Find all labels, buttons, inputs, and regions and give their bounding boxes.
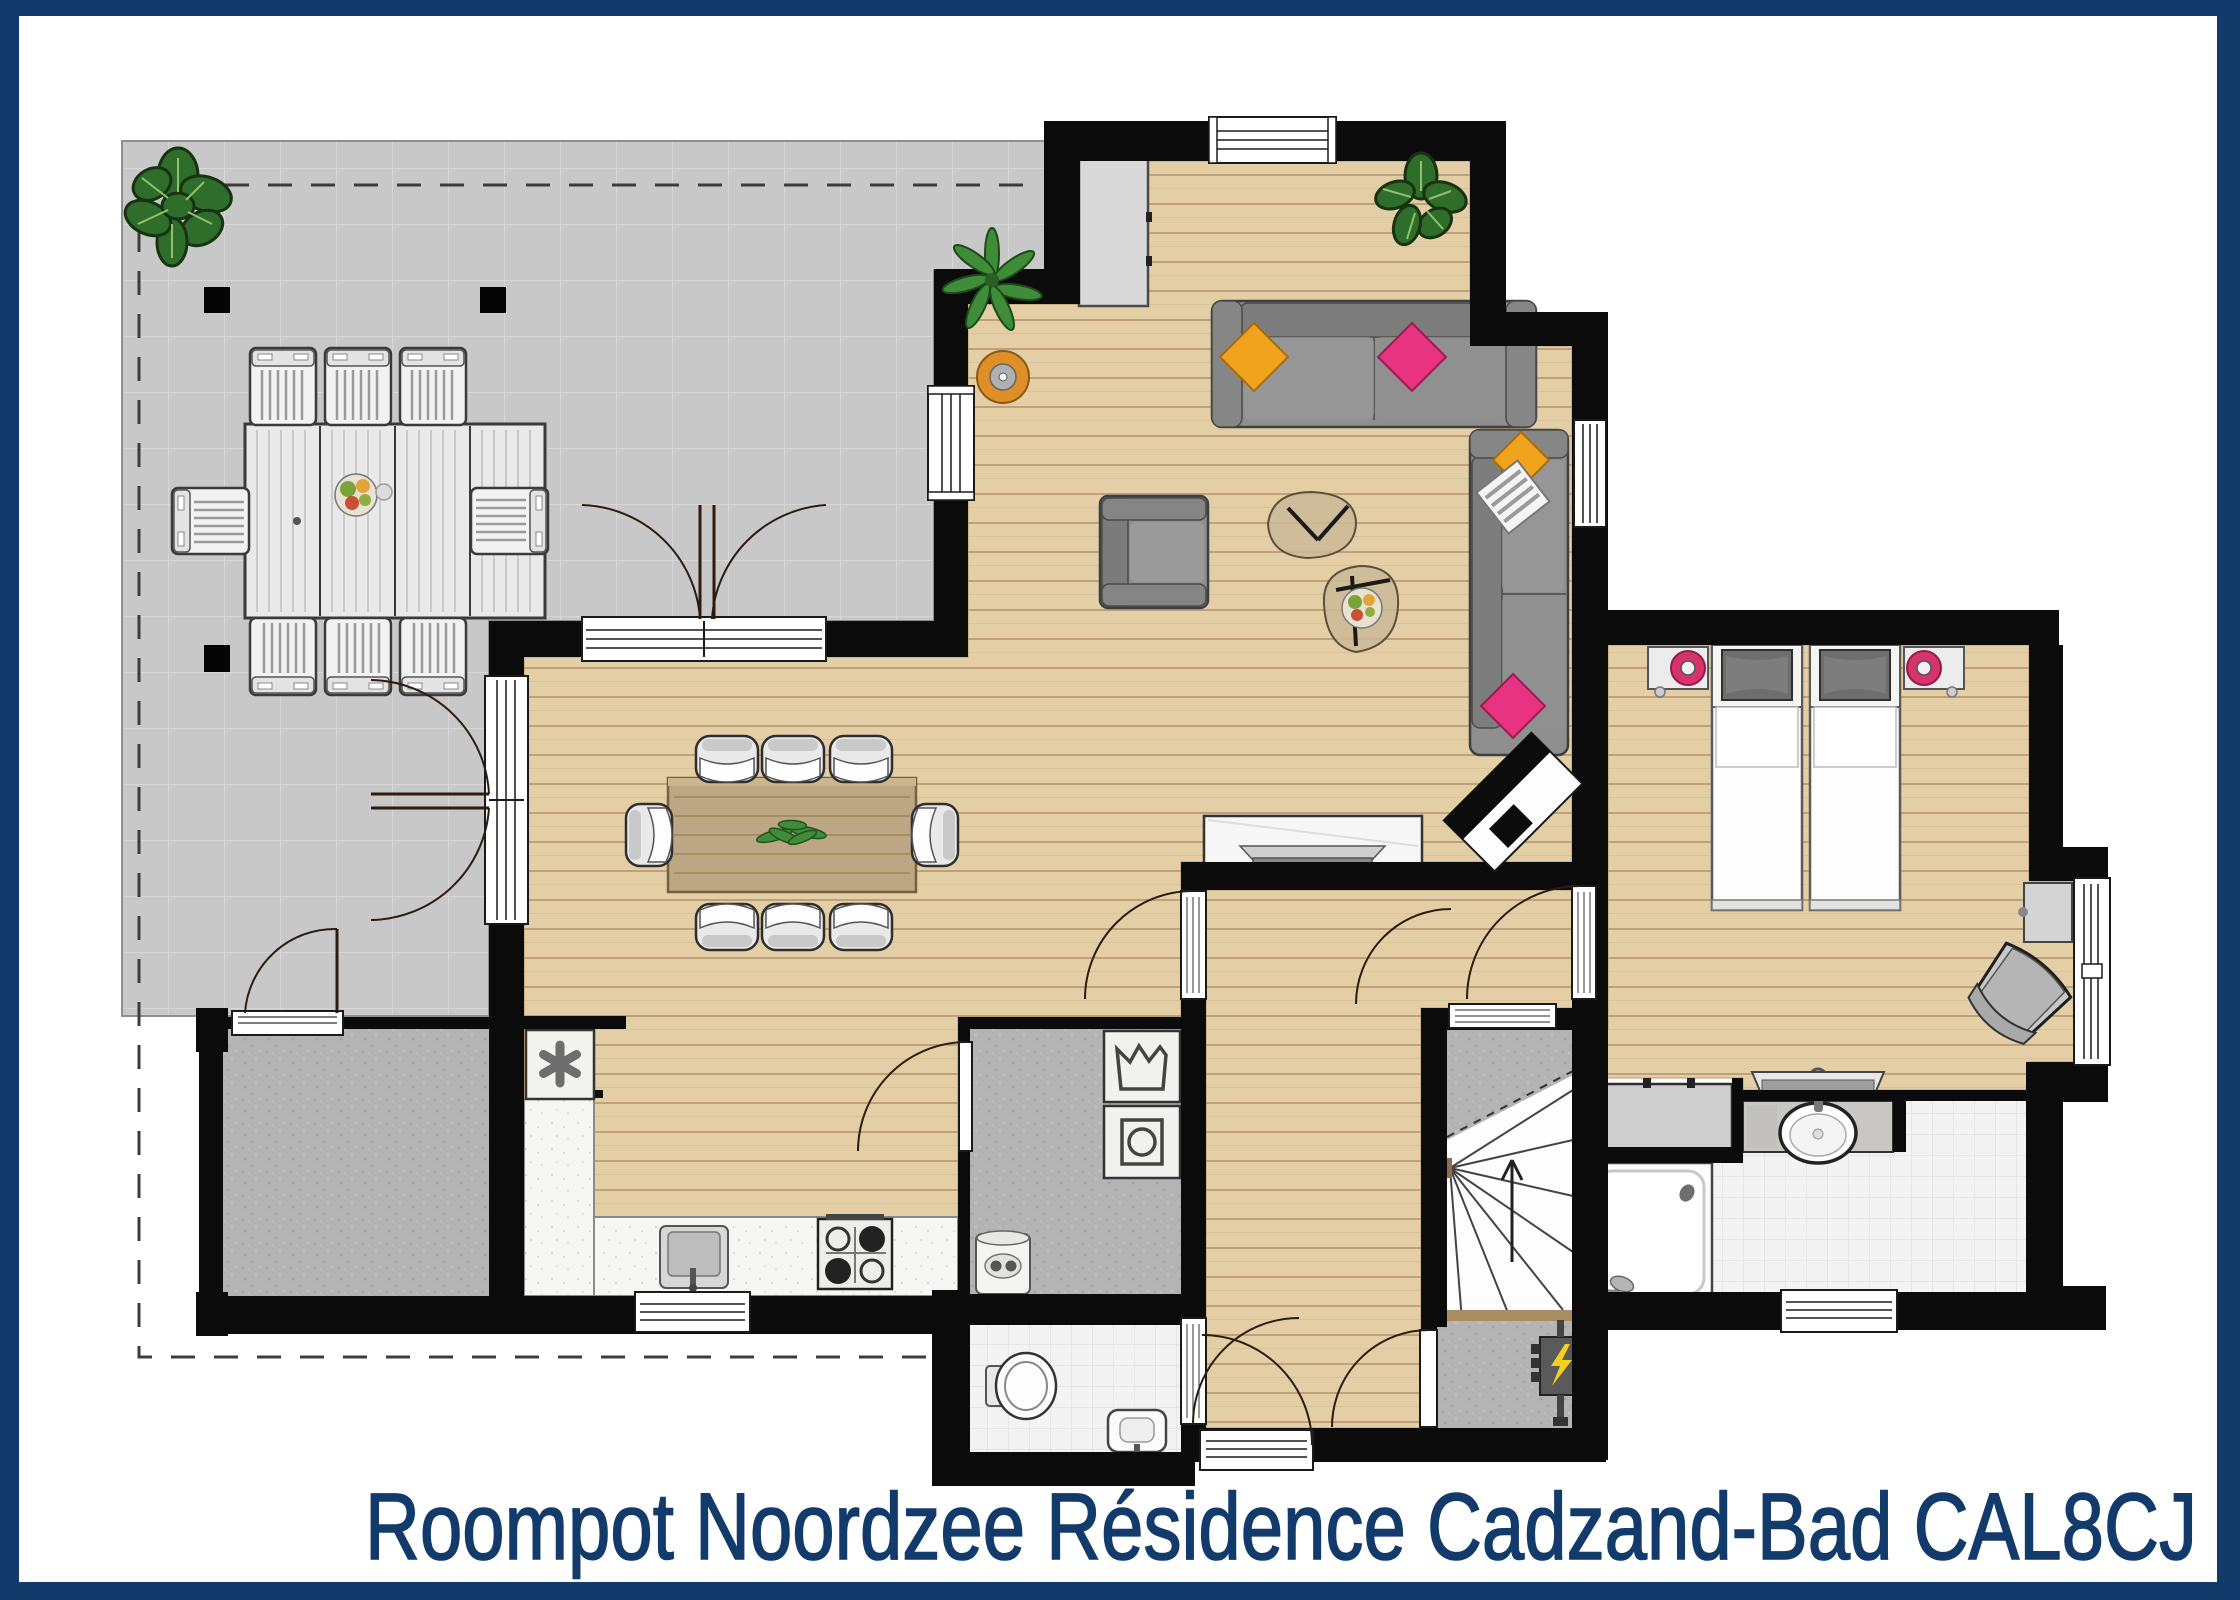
svg-text:Roompot Noordzee Résidence Cad: Roompot Noordzee Résidence Cadzand-Bad C… xyxy=(365,1474,2197,1580)
